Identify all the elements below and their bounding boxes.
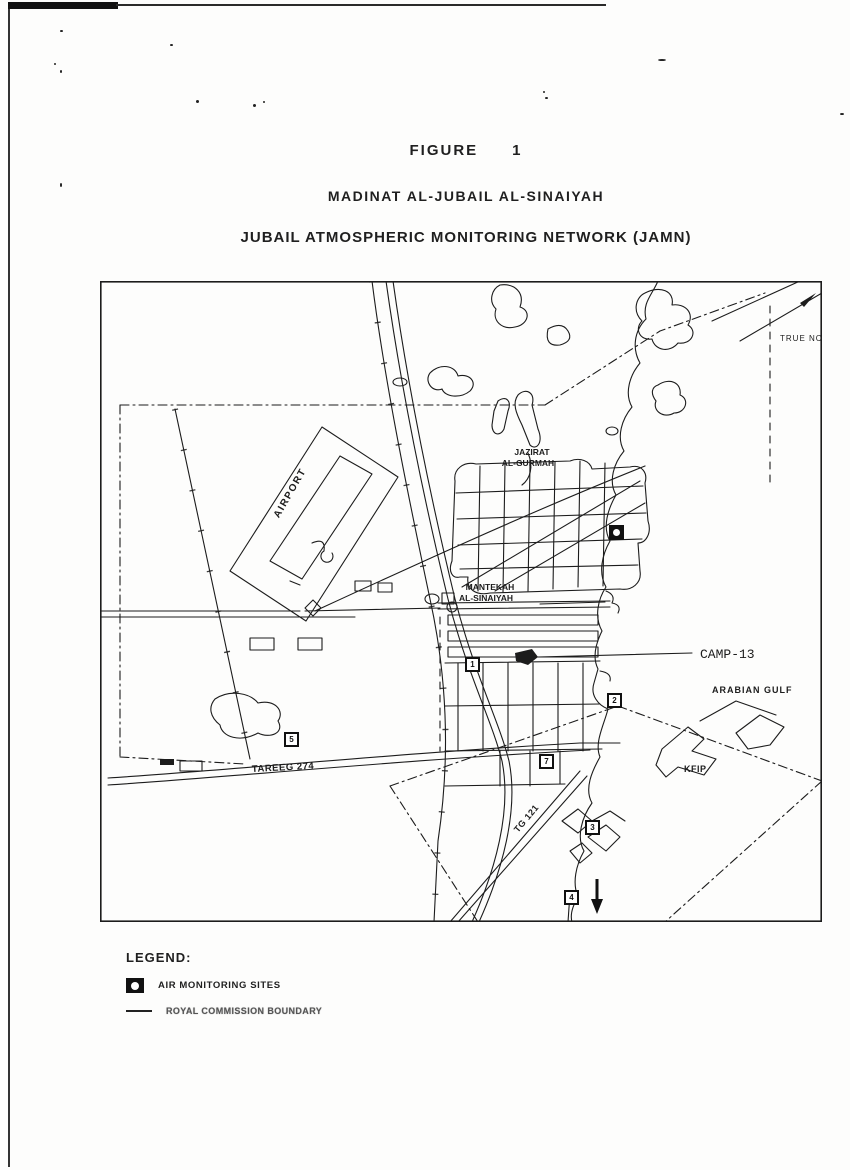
scan-speck (60, 183, 62, 187)
legend-item-label: AIR MONITORING SITES (158, 980, 281, 991)
monitoring-site-marker: 2 (607, 693, 622, 708)
scan-speck (253, 104, 256, 107)
scan-ink-bar (8, 2, 118, 9)
map-drawing: AIRPORT JAZIRAT AL-GURMAH MANTEKAH AL-SI… (100, 281, 822, 922)
site-circle-icon (613, 529, 620, 536)
jazirat-label-line1: JAZIRAT (514, 447, 550, 457)
interchange-diamond (305, 600, 321, 616)
royal-commission-boundary (120, 293, 765, 764)
monitoring-site-marker: 3 (585, 820, 600, 835)
kfip-boundary (390, 706, 822, 922)
legend: LEGEND: AIR MONITORING SITES ROYAL COMMI… (126, 950, 446, 1016)
scan-speck (54, 63, 56, 65)
figure-label: FIGURE (409, 142, 478, 159)
west-features (160, 409, 392, 771)
mantekah-label-line2: AL-SINAIYAH (459, 593, 513, 603)
scan-speck (60, 30, 63, 32)
scan-speck (263, 101, 265, 103)
airport-label: AIRPORT (272, 466, 309, 520)
legend-item-boundary: ROYAL COMMISSION BOUNDARY (126, 1006, 446, 1016)
legend-item-air-monitoring: AIR MONITORING SITES (126, 978, 446, 993)
scan-left-edge-line (8, 9, 10, 1167)
legend-item-label: ROYAL COMMISSION BOUNDARY (166, 1006, 322, 1016)
arabian-gulf-label: ARABIAN GULF (712, 685, 793, 695)
camp13-label: CAMP-13 (700, 647, 755, 662)
kfip-label: KFIP (684, 764, 707, 774)
figure-caption: FIGURE1 (105, 142, 827, 159)
scan-speck (545, 97, 548, 99)
monitoring-site-marker: 5 (284, 732, 299, 747)
monitoring-site-marker: 7 (539, 754, 554, 769)
figure-number: 1 (512, 142, 522, 159)
camp13-callout (515, 649, 692, 665)
air-monitoring-site-icon (126, 978, 144, 993)
camp13-leader-line (538, 653, 692, 657)
scan-speck (196, 100, 199, 103)
scan-speck (60, 70, 62, 73)
flow-arrow-icon (591, 879, 603, 914)
monitoring-site-marker: 4 (564, 890, 579, 905)
scan-speck (543, 91, 545, 93)
monitoring-site-marker (609, 525, 624, 540)
map-figure: AIRPORT JAZIRAT AL-GURMAH MANTEKAH AL-SI… (100, 281, 822, 922)
scan-speck (840, 113, 844, 115)
figure-subtitle: MADINAT AL-JUBAIL AL-SINAIYAH (105, 188, 827, 204)
industrial-grid (425, 593, 610, 786)
tareeg-274-label: TAREEG 274 (252, 761, 315, 775)
airport-area (230, 427, 398, 621)
jazirat-label-line2: AL-GURMAH (502, 458, 554, 468)
true-north-reference (770, 293, 816, 486)
true-north-label: TRUE NC (780, 334, 822, 343)
north-arrow-icon (800, 293, 816, 307)
scan-speck (658, 59, 666, 61)
scan-speck (170, 44, 173, 46)
scanned-document-page: FIGURE1 MADINAT AL-JUBAIL AL-SINAIYAH JU… (0, 0, 850, 1170)
scan-top-line (116, 4, 606, 6)
mantekah-label-line1: MANTEKAH (466, 582, 515, 592)
monitoring-site-marker: 1 (465, 657, 480, 672)
legend-heading: LEGEND: (126, 950, 446, 965)
figure-title: JUBAIL ATMOSPHERIC MONITORING NETWORK (J… (105, 229, 827, 246)
tg-121-label: TG 121 (512, 803, 541, 835)
boundary-line-icon (126, 1010, 152, 1012)
port-structures (562, 701, 784, 922)
